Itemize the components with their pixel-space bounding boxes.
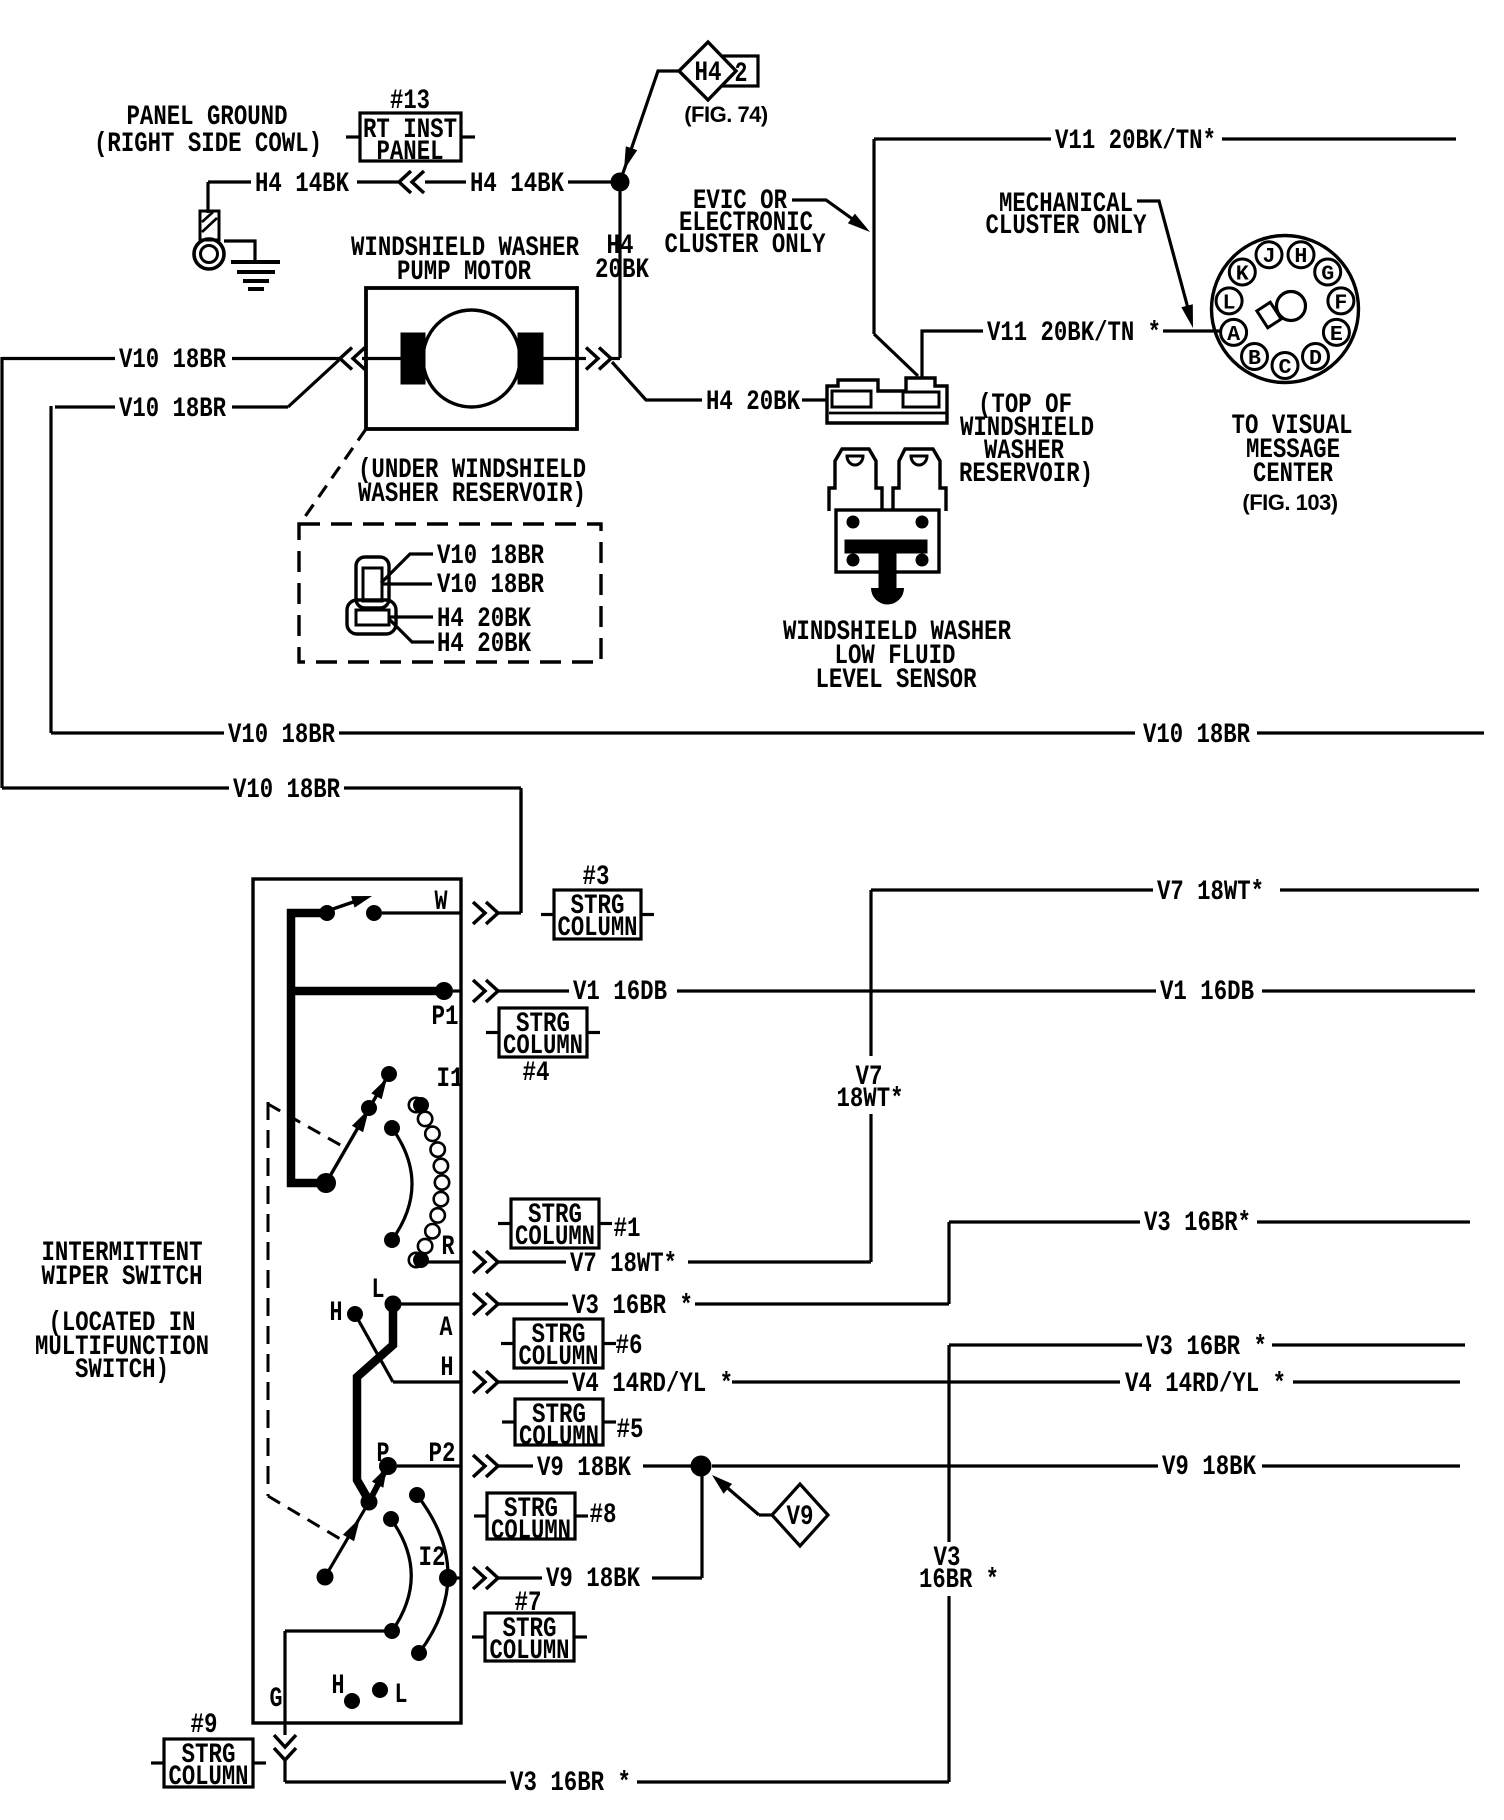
svg-text:P1: P1 xyxy=(432,1002,459,1033)
svg-text:WASHER RESERVOIR): WASHER RESERVOIR) xyxy=(358,479,586,510)
svg-text:V10 18BR: V10 18BR xyxy=(437,570,544,601)
svg-text:COLUMN: COLUMN xyxy=(519,1422,599,1453)
svg-text:V9 18BK: V9 18BK xyxy=(537,1453,631,1484)
svg-text:LEVEL SENSOR: LEVEL SENSOR xyxy=(816,665,977,696)
svg-text:V3 16BR*: V3 16BR* xyxy=(1144,1208,1251,1239)
svg-text:K: K xyxy=(1236,263,1249,286)
svg-text:R: R xyxy=(442,1232,455,1263)
svg-text:#1: #1 xyxy=(614,1214,641,1245)
svg-text:B: B xyxy=(1248,348,1261,371)
svg-text:(FIG. 103): (FIG. 103) xyxy=(1242,490,1337,515)
svg-text:(RIGHT SIDE COWL): (RIGHT SIDE COWL) xyxy=(94,129,322,160)
svg-text:V4 14RD/YL *: V4 14RD/YL * xyxy=(572,1369,733,1400)
svg-text:RESERVOIR): RESERVOIR) xyxy=(959,459,1093,490)
svg-text:H4 14BK: H4 14BK xyxy=(255,169,349,200)
svg-text:#3: #3 xyxy=(583,862,610,893)
svg-text:V3 16BR *: V3 16BR * xyxy=(1146,1332,1267,1363)
svg-text:COLUMN: COLUMN xyxy=(519,1342,599,1373)
svg-text:A: A xyxy=(440,1313,453,1344)
svg-text:H4 20BK: H4 20BK xyxy=(706,387,800,418)
svg-text:G: G xyxy=(270,1684,283,1715)
svg-text:COLUMN: COLUMN xyxy=(490,1636,570,1667)
svg-text:E: E xyxy=(1330,324,1343,347)
svg-text:V7 18WT*: V7 18WT* xyxy=(570,1249,677,1280)
svg-text:V7 18WT*: V7 18WT* xyxy=(1157,877,1264,908)
svg-text:D: D xyxy=(1309,348,1322,371)
svg-text:#4: #4 xyxy=(523,1058,550,1089)
svg-text:V1 16DB: V1 16DB xyxy=(1160,977,1254,1008)
svg-text:CLUSTER ONLY: CLUSTER ONLY xyxy=(665,230,826,261)
svg-text:H: H xyxy=(441,1353,454,1384)
svg-text:V11 20BK/TN*: V11 20BK/TN* xyxy=(1055,126,1216,157)
svg-text:L: L xyxy=(395,1680,408,1711)
svg-text:#5: #5 xyxy=(617,1415,644,1446)
svg-text:PANEL: PANEL xyxy=(377,137,444,168)
svg-text:20BK: 20BK xyxy=(595,255,649,286)
svg-text:V10 18BR: V10 18BR xyxy=(233,775,340,806)
svg-text:C: C xyxy=(1279,357,1292,380)
svg-text:(FIG. 74): (FIG. 74) xyxy=(684,102,768,127)
svg-text:P2: P2 xyxy=(429,1439,456,1470)
svg-text:COLUMN: COLUMN xyxy=(558,913,638,944)
svg-text:H4 14BK: H4 14BK xyxy=(470,169,564,200)
svg-text:V1 16DB: V1 16DB xyxy=(573,977,667,1008)
svg-text:#8: #8 xyxy=(590,1500,617,1531)
svg-text:I1: I1 xyxy=(437,1064,464,1095)
svg-text:CLUSTER ONLY: CLUSTER ONLY xyxy=(986,211,1147,242)
svg-text:COLUMN: COLUMN xyxy=(515,1222,595,1253)
svg-text:V10 18BR: V10 18BR xyxy=(437,541,544,572)
svg-text:V10 18BR: V10 18BR xyxy=(228,720,335,751)
svg-text:F: F xyxy=(1334,292,1347,315)
svg-text:PUMP MOTOR: PUMP MOTOR xyxy=(397,257,531,288)
svg-text:2: 2 xyxy=(735,59,748,90)
svg-text:A: A xyxy=(1227,324,1240,347)
svg-text:J: J xyxy=(1263,246,1276,269)
svg-text:V10 18BR: V10 18BR xyxy=(1143,720,1250,751)
svg-text:I2: I2 xyxy=(419,1543,446,1574)
svg-text:V3 16BR *: V3 16BR * xyxy=(510,1768,631,1799)
svg-text:SWITCH): SWITCH) xyxy=(75,1355,169,1386)
svg-text:H: H xyxy=(330,1298,343,1329)
svg-text:L: L xyxy=(1223,292,1236,315)
svg-text:COLUMN: COLUMN xyxy=(169,1762,249,1793)
svg-text:V9 18BK: V9 18BK xyxy=(546,1564,640,1595)
svg-text:W: W xyxy=(435,887,448,918)
svg-text:V11 20BK/TN *: V11 20BK/TN * xyxy=(987,318,1161,349)
svg-text:H: H xyxy=(1294,246,1307,269)
svg-text:V3 16BR *: V3 16BR * xyxy=(572,1291,693,1322)
svg-text:COLUMN: COLUMN xyxy=(491,1516,571,1547)
svg-text:V4 14RD/YL *: V4 14RD/YL * xyxy=(1125,1369,1286,1400)
svg-text:CENTER: CENTER xyxy=(1253,459,1333,490)
svg-text:G: G xyxy=(1321,263,1334,286)
svg-text:#6: #6 xyxy=(616,1331,643,1362)
svg-text:16BR *: 16BR * xyxy=(919,1565,999,1596)
svg-text:H4: H4 xyxy=(695,58,722,89)
svg-text:WIPER SWITCH: WIPER SWITCH xyxy=(42,1262,203,1293)
svg-text:V9 18BK: V9 18BK xyxy=(1162,1452,1256,1483)
svg-text:L: L xyxy=(372,1275,385,1306)
svg-text:#9: #9 xyxy=(191,1710,218,1741)
svg-text:V10 18BR: V10 18BR xyxy=(119,394,226,425)
svg-text:V10 18BR: V10 18BR xyxy=(119,345,226,376)
svg-text:18WT*: 18WT* xyxy=(837,1084,904,1115)
svg-text:V9: V9 xyxy=(787,1502,814,1533)
svg-text:H4 20BK: H4 20BK xyxy=(437,629,531,660)
svg-text:H: H xyxy=(332,1671,345,1702)
